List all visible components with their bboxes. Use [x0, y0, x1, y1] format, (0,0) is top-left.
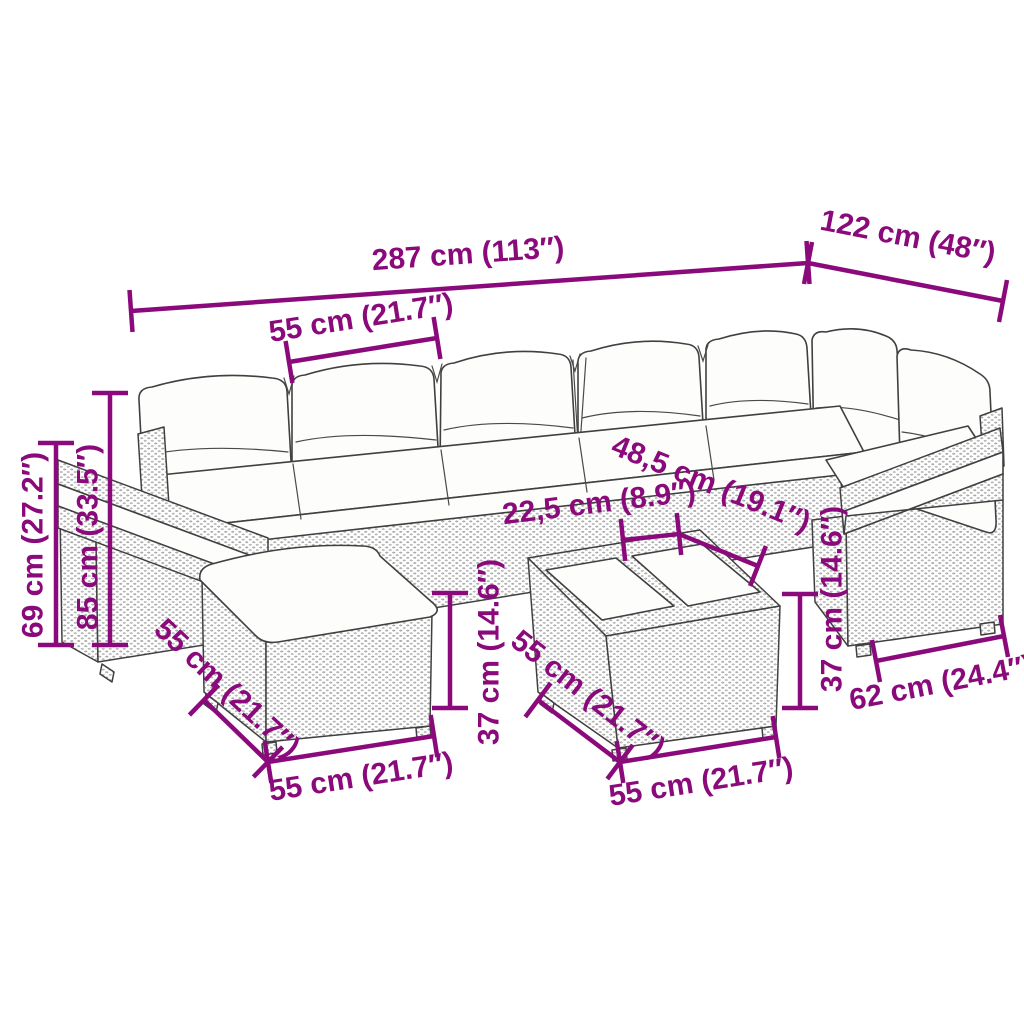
sofa-foot: [100, 664, 114, 682]
wing-foot: [980, 622, 995, 635]
dimension-label-armrest-height: 69 cm (27.2″): [17, 452, 50, 638]
dimension-label-total-depth: 122 cm (48″): [818, 204, 999, 270]
dimension-label-backrest-height: 85 cm (33.5″): [72, 444, 105, 630]
wing-foot: [856, 644, 871, 657]
product-dimension-diagram: 287 cm (113″) 122 cm (48″) 55 cm (21.7″)…: [0, 0, 1024, 1024]
furniture-diagram-canvas: 287 cm (113″) 122 cm (48″) 55 cm (21.7″)…: [0, 0, 1024, 1024]
dimension-label-seat-height: 37 cm (14.6″): [816, 506, 849, 692]
dimension-label-table-height: 37 cm (14.6″): [473, 559, 506, 745]
dimension-label-ottoman-front: 55 cm (21.7″): [266, 746, 455, 808]
ottoman: [200, 545, 437, 755]
dimension-label-total-width: 287 cm (113″): [371, 231, 566, 277]
dimension-label-seat-depth: 62 cm (24.4″): [846, 649, 1024, 717]
dimension-line-seat-height: [782, 594, 818, 708]
